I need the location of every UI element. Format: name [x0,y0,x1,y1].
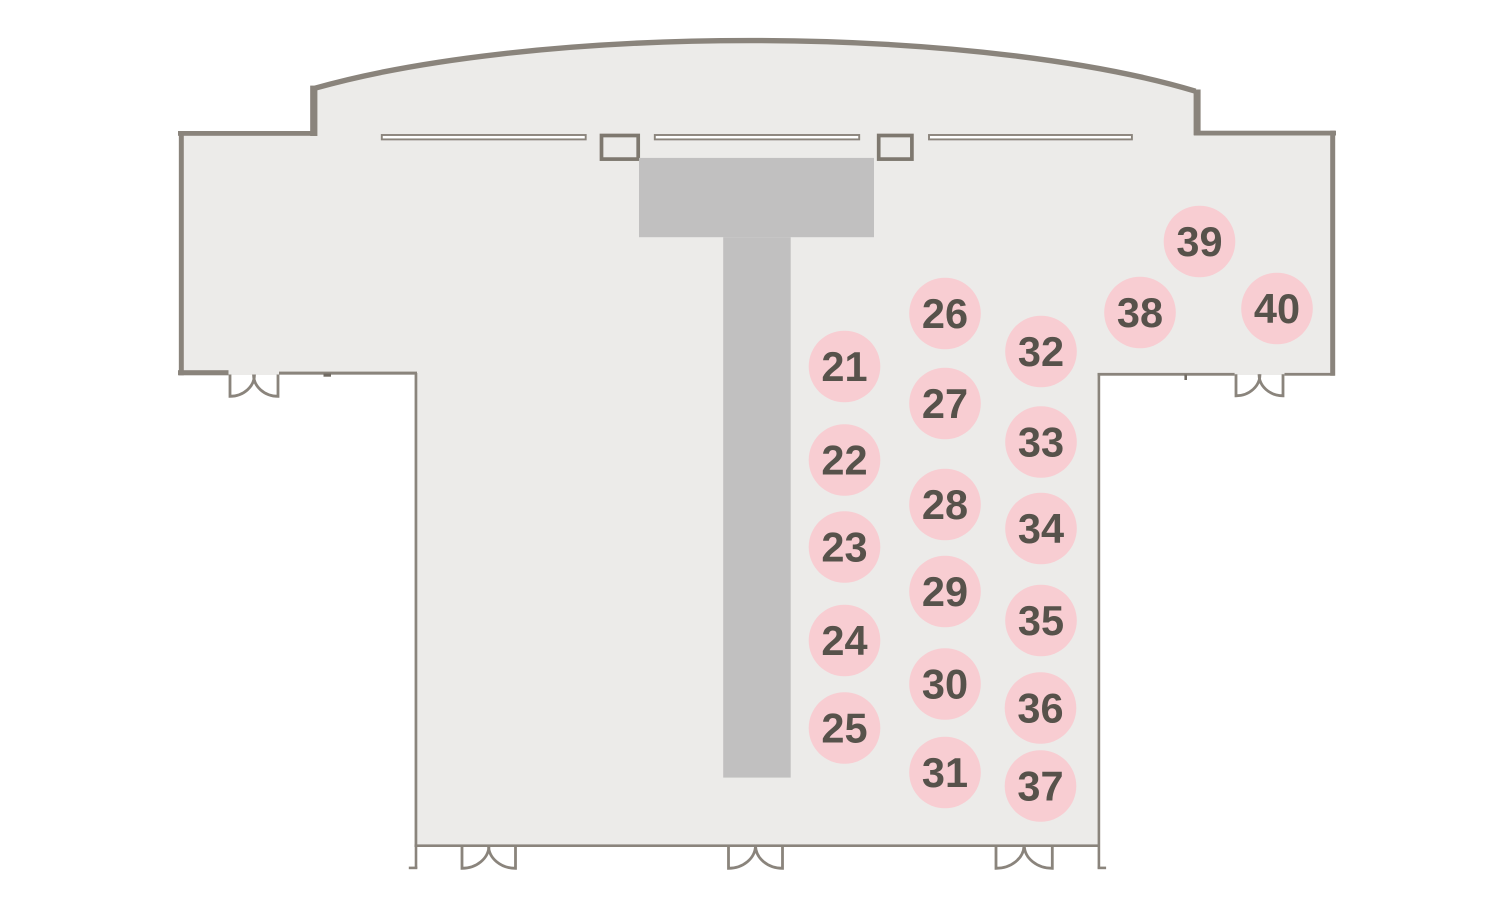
svg-text:27: 27 [922,380,968,427]
svg-text:22: 22 [821,436,867,483]
svg-text:35: 35 [1018,597,1064,644]
svg-text:21: 21 [821,343,867,390]
svg-text:37: 37 [1017,762,1063,809]
svg-text:32: 32 [1018,328,1064,375]
svg-text:31: 31 [922,749,968,796]
svg-text:39: 39 [1176,218,1222,265]
svg-text:34: 34 [1018,505,1064,552]
svg-text:33: 33 [1018,418,1064,465]
svg-text:38: 38 [1117,289,1163,336]
svg-text:26: 26 [922,290,968,337]
svg-text:23: 23 [821,523,867,570]
svg-text:30: 30 [922,660,968,707]
svg-text:28: 28 [922,481,968,528]
svg-text:25: 25 [821,704,867,751]
svg-text:40: 40 [1254,285,1300,332]
svg-text:24: 24 [821,617,867,664]
svg-text:29: 29 [922,568,968,615]
svg-text:36: 36 [1017,684,1063,731]
